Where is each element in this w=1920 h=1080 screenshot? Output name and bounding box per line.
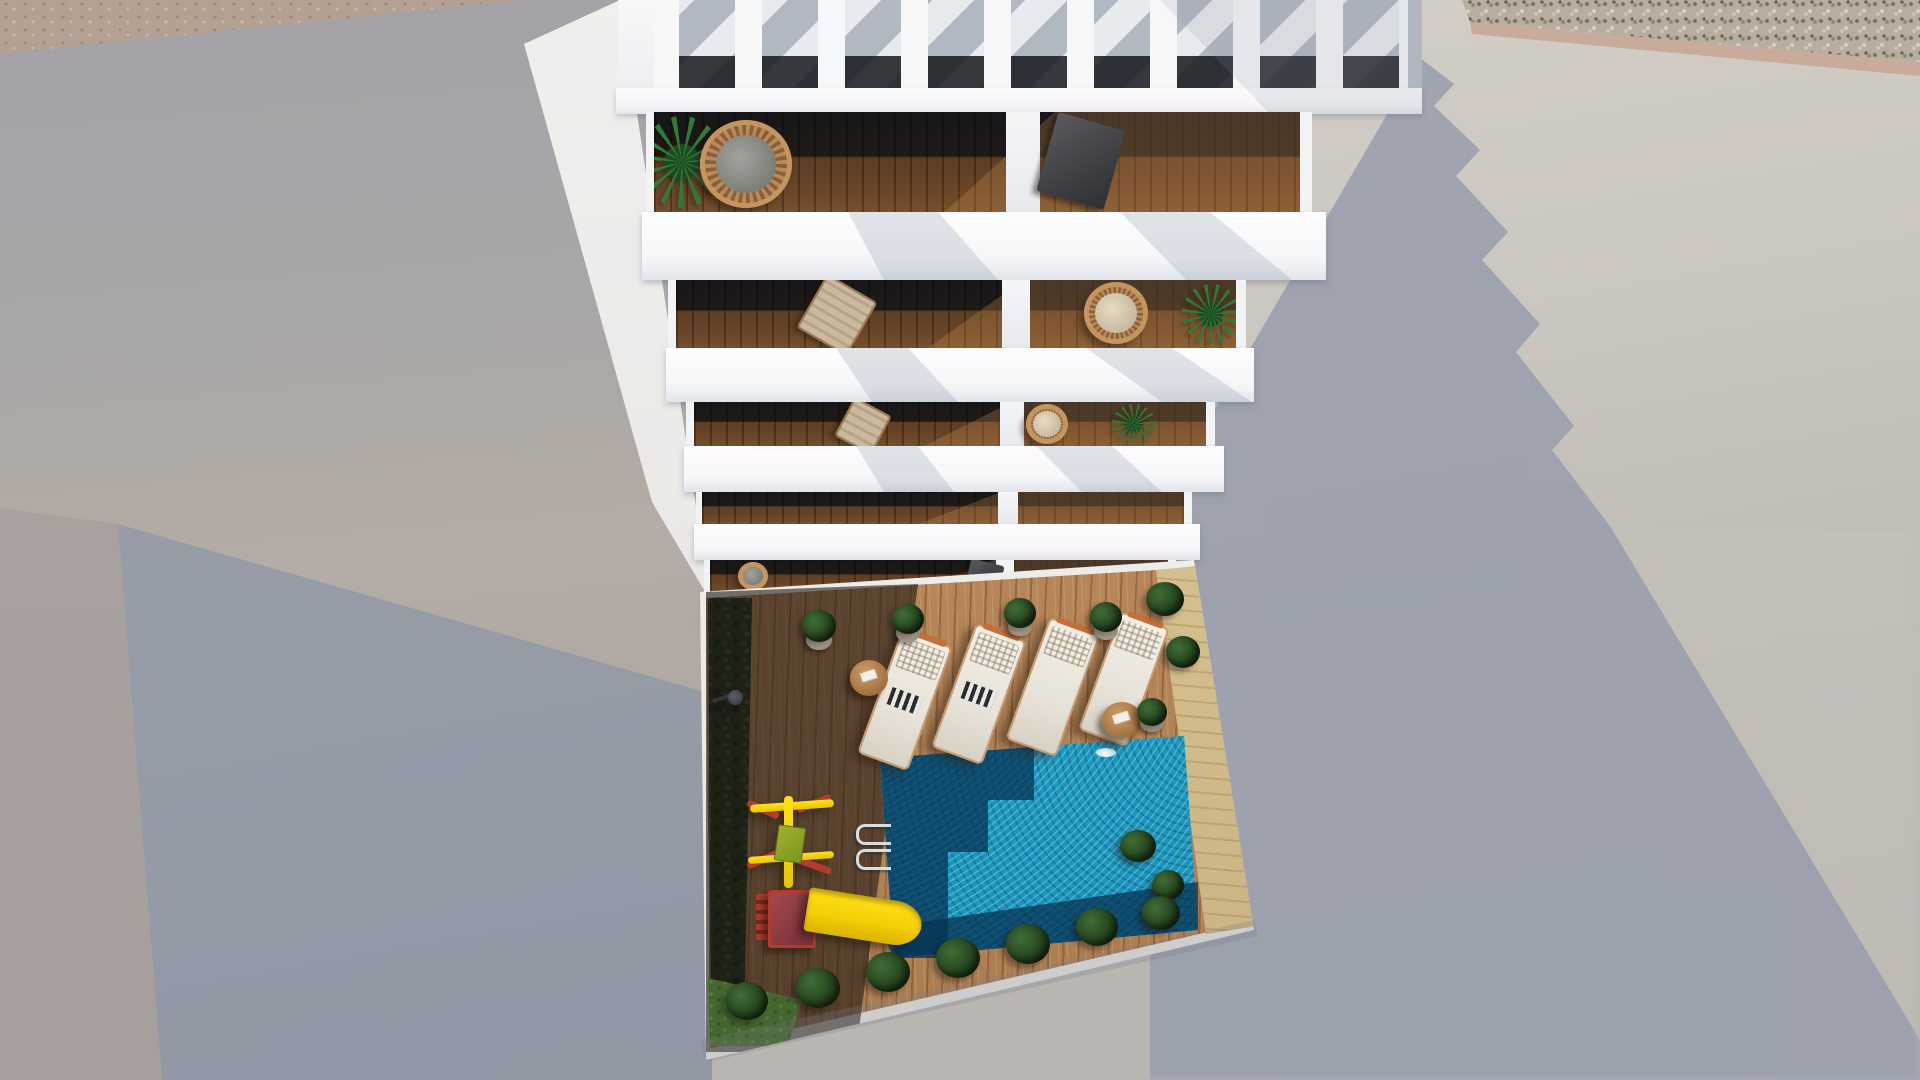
balcony-divider xyxy=(1000,402,1024,446)
swing-seat xyxy=(774,824,807,864)
balcony-end-cap xyxy=(686,402,694,446)
balcony-end-cap xyxy=(1184,492,1192,524)
wicker-chair xyxy=(1026,404,1068,444)
pergola-left-rail xyxy=(618,0,654,88)
bush xyxy=(726,982,768,1020)
balcony-row-3 xyxy=(694,402,1206,446)
pool-ladder-rail xyxy=(856,849,891,870)
balcony-divider xyxy=(998,492,1018,524)
bush xyxy=(866,952,910,992)
balcony-end-cap xyxy=(1236,280,1246,348)
aerial-render-scene xyxy=(0,0,1920,1080)
potted-bush xyxy=(1090,602,1122,632)
lounger-towel xyxy=(960,681,996,709)
beige-deck-chair xyxy=(834,402,892,446)
balcony-row-4 xyxy=(702,492,1184,524)
leafy-plant xyxy=(676,282,750,346)
bush xyxy=(796,968,840,1008)
bush xyxy=(936,938,980,978)
slide-chute xyxy=(803,887,924,949)
bush xyxy=(1146,582,1184,616)
balcony-end-cap xyxy=(1300,112,1312,212)
bush xyxy=(1076,908,1118,946)
potted-bush xyxy=(802,610,836,642)
balcony-divider xyxy=(1002,280,1030,348)
wicker-chair xyxy=(738,562,768,590)
balcony-end-cap xyxy=(704,560,710,592)
potted-bush xyxy=(892,604,924,634)
leafy-plant xyxy=(698,404,754,444)
beige-deck-chair xyxy=(796,280,877,348)
bush xyxy=(1166,636,1200,668)
balcony-divider xyxy=(1006,112,1040,212)
potted-bush xyxy=(1137,698,1167,726)
potted-bush xyxy=(1004,598,1036,628)
pool-ladder-rail xyxy=(856,824,891,845)
pool-shower-head xyxy=(728,690,743,705)
bush xyxy=(1142,896,1180,930)
palm-plant xyxy=(1112,404,1156,444)
leafy-plant xyxy=(1236,126,1300,204)
bush xyxy=(1120,830,1156,862)
wicker-peacock-chair xyxy=(1084,282,1148,344)
bush xyxy=(1006,924,1050,964)
balcony-sunlit-patch xyxy=(676,280,1236,348)
balcony-end-cap xyxy=(668,280,676,348)
balcony-end-cap xyxy=(1206,402,1215,446)
lounger-towel xyxy=(886,687,922,715)
balcony-row-1 xyxy=(654,112,1300,212)
balcony-sunlit-patch xyxy=(702,492,1184,524)
slide xyxy=(756,884,924,952)
balcony-row-2 xyxy=(676,280,1236,348)
balcony-end-cap xyxy=(696,492,702,524)
palm-plant xyxy=(1182,284,1236,344)
side-table xyxy=(850,660,888,696)
pool-light xyxy=(1096,748,1116,757)
swing-set xyxy=(744,790,848,896)
leafy-plant xyxy=(814,114,906,210)
balcony-end-cap xyxy=(646,112,654,212)
wicker-egg-chair xyxy=(700,120,792,208)
side-table xyxy=(1102,702,1142,738)
balcony-slab-4 xyxy=(694,524,1200,560)
